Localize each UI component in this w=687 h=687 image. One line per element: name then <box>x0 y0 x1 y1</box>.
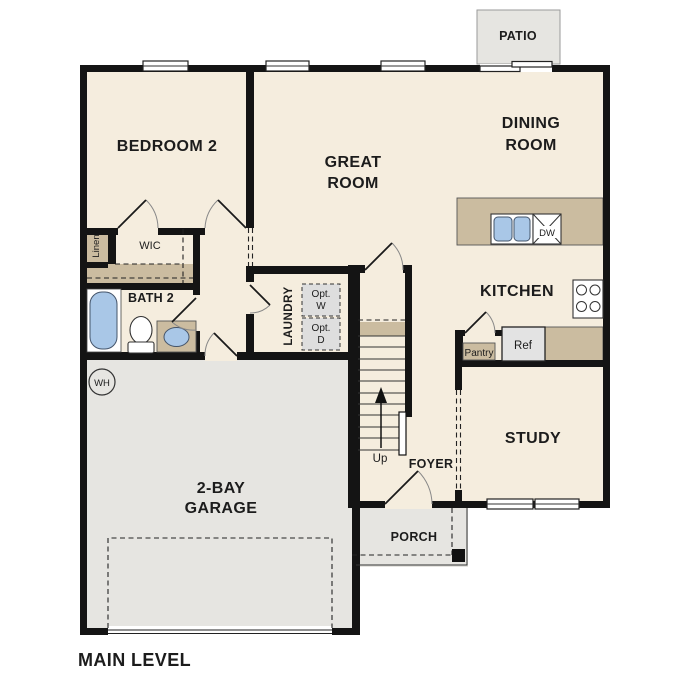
toilet-bowl <box>130 317 152 344</box>
patio-slider-panel <box>512 62 552 68</box>
label-patio: PATIO <box>499 29 537 43</box>
label-dining-1: DINING <box>502 115 560 132</box>
label-great-room-1: GREAT <box>325 154 382 171</box>
floor-plan-svg: BEDROOM 2 GREAT ROOM DINING ROOM KITCHEN… <box>0 0 687 687</box>
label-laundry: LAUNDRY <box>283 286 295 345</box>
label-kitchen: KITCHEN <box>480 283 554 300</box>
label-bedroom2: BEDROOM 2 <box>117 138 218 155</box>
kitchen-counter-bottom <box>545 327 603 363</box>
floor-plan-page: BEDROOM 2 GREAT ROOM DINING ROOM KITCHEN… <box>0 0 687 687</box>
label-opt-d-2: D <box>317 335 324 346</box>
label-dishwasher: DW <box>539 228 555 239</box>
stair-railing <box>399 412 406 455</box>
label-great-room-2: ROOM <box>327 175 378 192</box>
porch-post <box>452 549 465 562</box>
label-up: Up <box>373 453 388 465</box>
plan-level-title: MAIN LEVEL <box>78 650 191 670</box>
label-porch: PORCH <box>391 530 438 544</box>
label-study: STUDY <box>505 430 561 447</box>
label-opt-d-1: Opt. <box>312 323 331 334</box>
sink-basin-right <box>514 217 530 241</box>
stair-shelf <box>358 322 405 336</box>
sink-basin-left <box>494 217 512 241</box>
bathtub <box>90 292 117 349</box>
label-water-heater: WH <box>94 378 110 389</box>
label-linen: Linen <box>91 234 102 257</box>
stove <box>573 280 603 318</box>
toilet-tank <box>128 342 154 353</box>
label-garage-2: GARAGE <box>185 500 258 517</box>
label-garage-1: 2-BAY <box>197 480 246 497</box>
label-wic: WIC <box>139 240 160 252</box>
label-dining-2: ROOM <box>505 137 556 154</box>
label-pantry: Pantry <box>465 348 494 359</box>
label-opt-w-1: Opt. <box>312 289 331 300</box>
label-foyer: FOYER <box>409 457 454 471</box>
label-refrigerator: Ref <box>514 340 533 352</box>
label-bath2: BATH 2 <box>128 291 174 305</box>
label-opt-w-2: W <box>316 301 326 312</box>
vanity-sink <box>164 328 189 347</box>
